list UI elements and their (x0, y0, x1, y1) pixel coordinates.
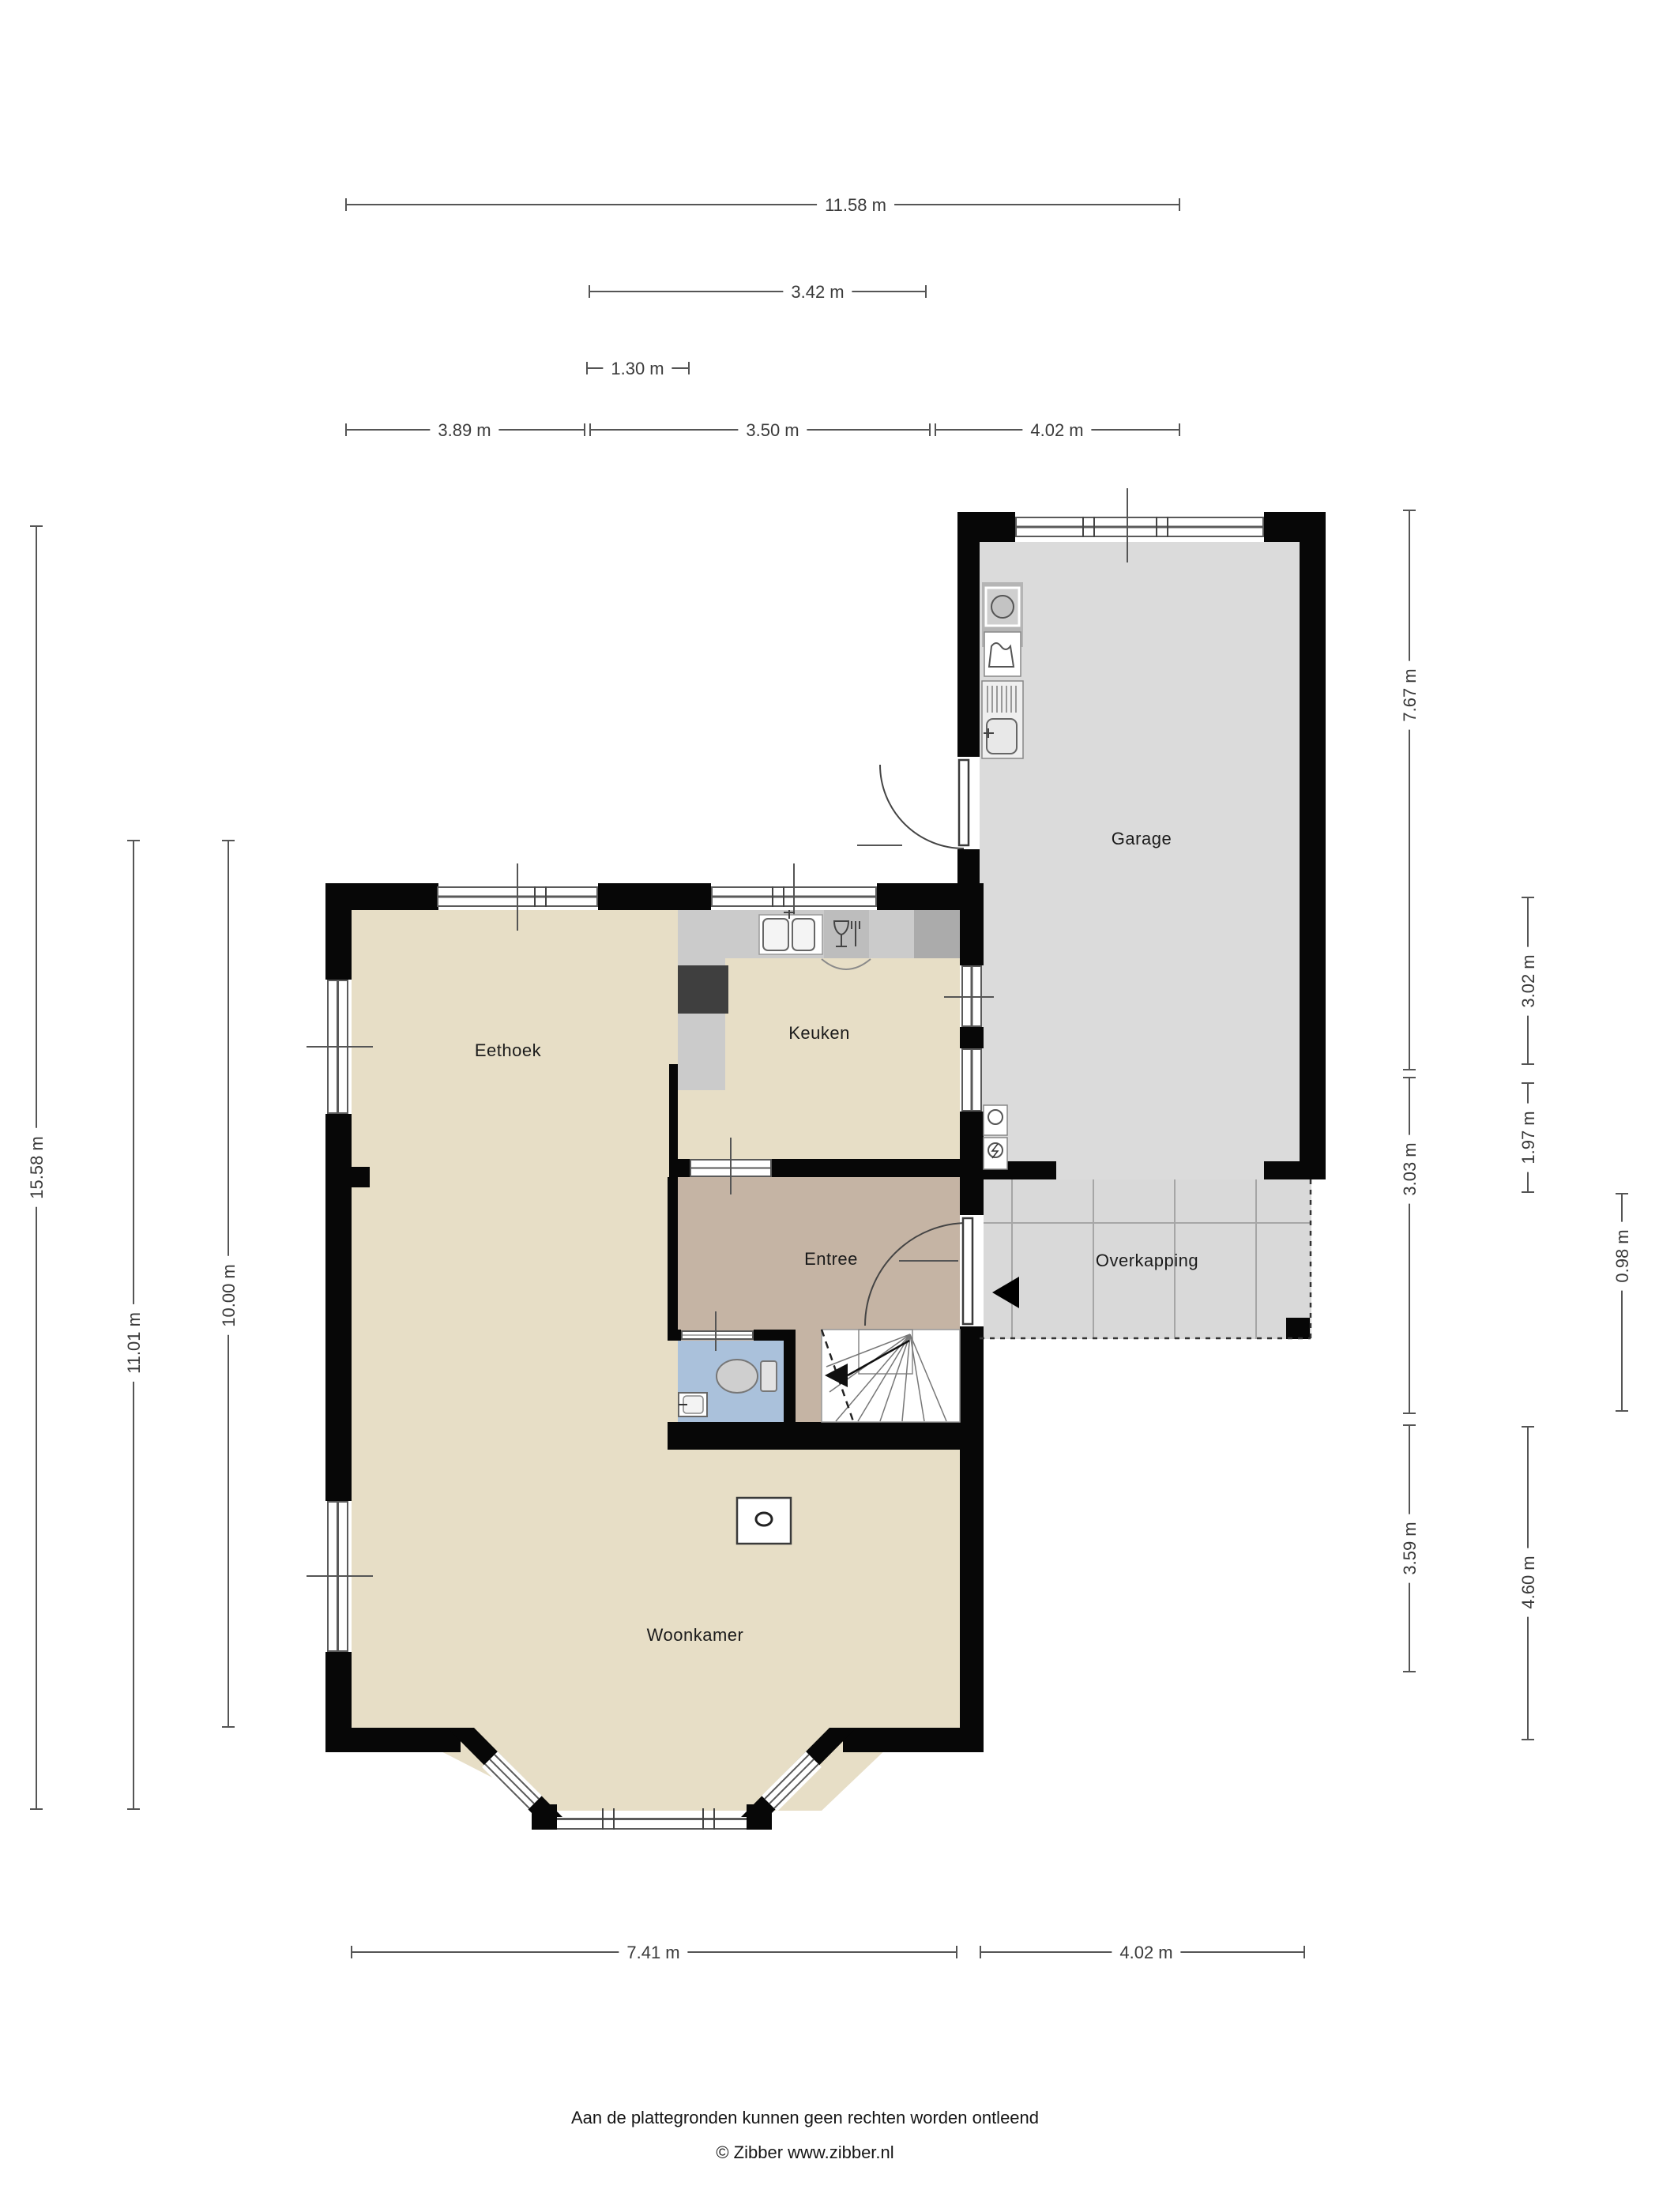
dim-height-0-98: 0.98 m (1621, 1193, 1623, 1412)
room-label-eethoek: Eethoek (475, 1040, 541, 1061)
garage-back-door (880, 760, 969, 848)
fireplace-icon (737, 1498, 791, 1544)
dim-height-3-02: 3.02 m (1527, 897, 1529, 1065)
counter-edge-arc (822, 959, 871, 969)
dim-total-width: 11.58 m (345, 204, 1180, 205)
dim-width-4-02-bottom: 4.02 m (980, 1951, 1305, 1953)
dim-garage-height: 7.67 m (1409, 510, 1410, 1070)
dim-height-3-59: 3.59 m (1409, 1424, 1410, 1672)
dim-height-10-00: 10.00 m (228, 840, 229, 1728)
front-door-leaf (963, 1218, 972, 1324)
kitchen-sink-icon (759, 910, 822, 954)
dim-width-3-42: 3.42 m (589, 291, 927, 292)
plan-decoration-layer (0, 0, 1659, 2212)
dim-height-1-97: 1.97 m (1527, 1082, 1529, 1193)
electric-boiler-icon (984, 1138, 1007, 1169)
dim-width-3-89: 3.89 m (345, 429, 585, 431)
hand-basin-icon (679, 1393, 707, 1416)
dim-width-1-30: 1.30 m (586, 367, 690, 369)
laundry-basket-icon (984, 632, 1021, 676)
room-label-keuken: Keuken (788, 1023, 850, 1044)
dim-width-4-02-top: 4.02 m (935, 429, 1180, 431)
boiler-icon (984, 1105, 1007, 1135)
toilet-icon (717, 1360, 777, 1393)
room-label-overkapping: Overkapping (1096, 1251, 1198, 1271)
wall (747, 1804, 772, 1830)
floorplan-canvas: Eethoek Keuken Garage Entree Overkapping… (0, 0, 1659, 2212)
footer-copyright: © Zibber www.zibber.nl (716, 2142, 893, 2163)
dishwasher-icon (834, 921, 860, 946)
room-label-woonkamer: Woonkamer (647, 1625, 744, 1646)
dim-height-4-60: 4.60 m (1527, 1426, 1529, 1740)
stairs (822, 1330, 960, 1422)
room-label-garage: Garage (1112, 829, 1172, 849)
dim-height-11-01: 11.01 m (133, 840, 134, 1810)
room-label-entree: Entree (804, 1249, 858, 1270)
wall (532, 1804, 557, 1830)
dim-total-height: 15.58 m (36, 525, 37, 1810)
window-mullions (535, 517, 1168, 1830)
dim-height-3-03: 3.03 m (1409, 1077, 1410, 1414)
garage-sink-icon (982, 681, 1023, 758)
footer-disclaimer: Aan de plattegronden kunnen geen rechten… (571, 2108, 1039, 2128)
front-door (865, 1218, 972, 1326)
dim-width-3-50: 3.50 m (589, 429, 931, 431)
wall (843, 1728, 984, 1752)
wall (325, 1728, 461, 1752)
dim-width-7-41: 7.41 m (351, 1951, 957, 1953)
entrance-arrow-icon (992, 1277, 1019, 1308)
garage-door-leaf (959, 760, 969, 845)
